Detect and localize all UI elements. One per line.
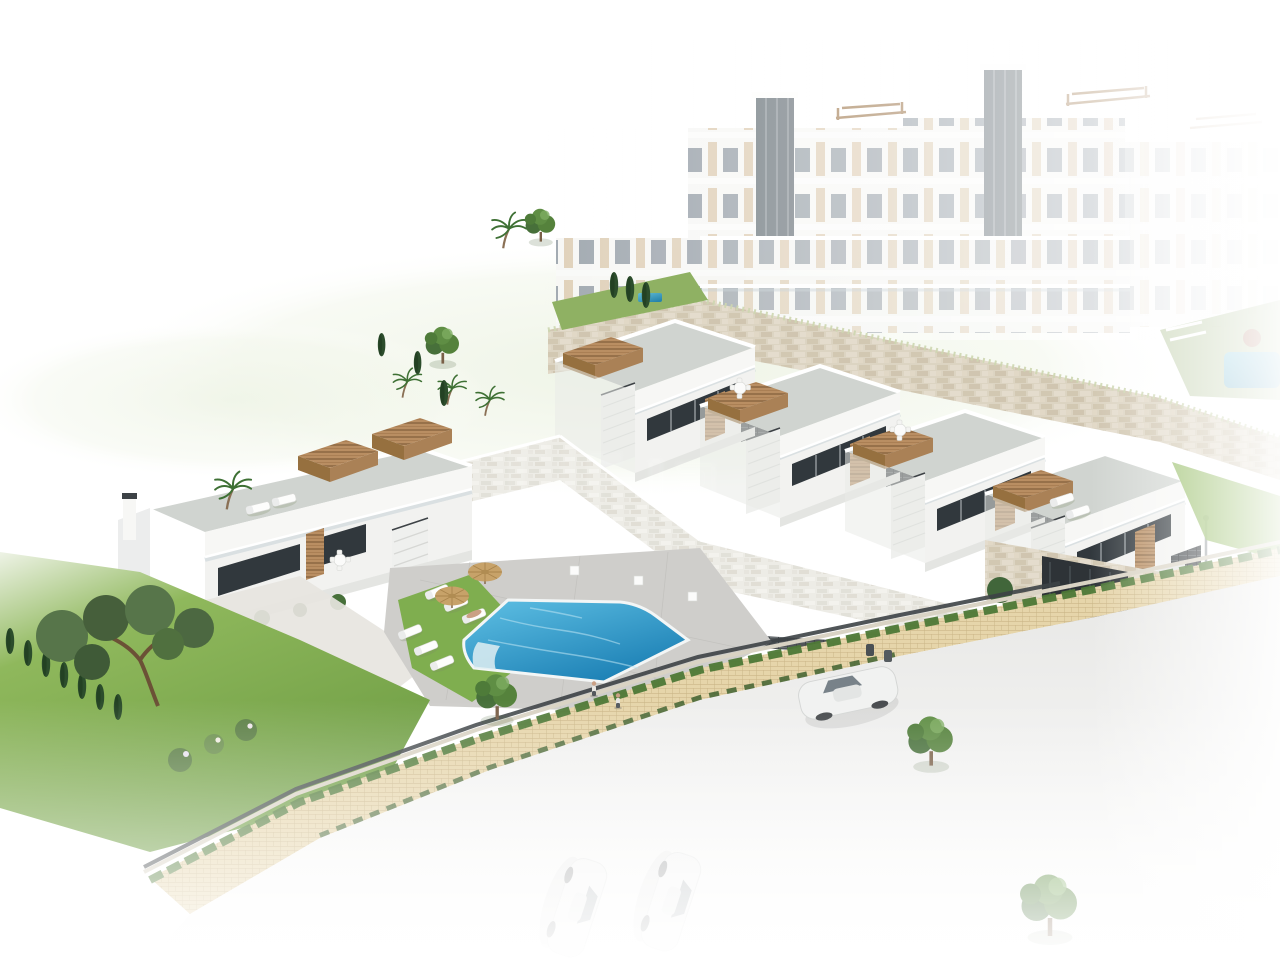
chimney (123, 498, 136, 540)
right-fade (1090, 0, 1280, 960)
render-canvas (0, 0, 1280, 960)
wood-panel (306, 528, 324, 580)
bottom-fade (0, 700, 1280, 960)
architectural-render (0, 0, 1280, 960)
